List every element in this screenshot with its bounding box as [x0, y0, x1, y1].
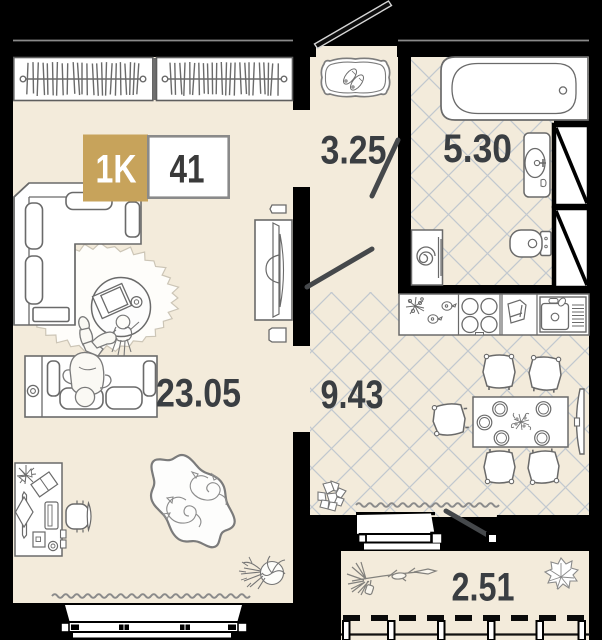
svg-text:9.43: 9.43: [321, 373, 384, 417]
svg-text:1K: 1K: [96, 148, 137, 192]
svg-text:23.05: 23.05: [156, 372, 241, 416]
svg-text:5.30: 5.30: [443, 127, 512, 171]
svg-text:3.25: 3.25: [321, 129, 387, 173]
svg-text:2.51: 2.51: [452, 566, 515, 610]
svg-text:41: 41: [170, 148, 205, 192]
